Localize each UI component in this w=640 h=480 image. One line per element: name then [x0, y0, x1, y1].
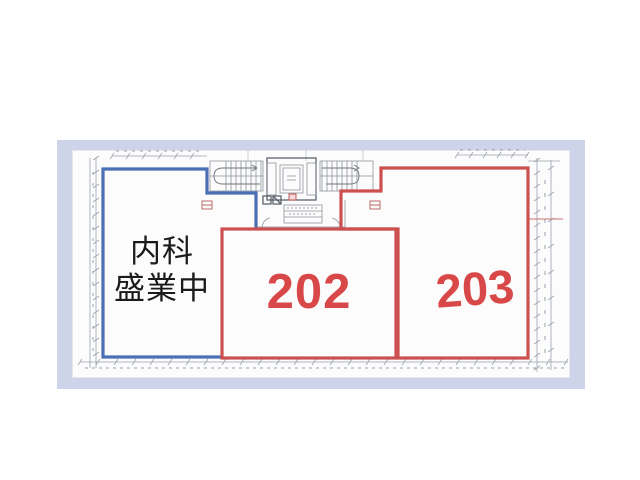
unit-203-label: 203	[416, 257, 534, 320]
red-marker	[289, 194, 296, 200]
floorplan-linework	[0, 0, 640, 480]
unit-left-label-line2: 盛業中	[100, 270, 224, 307]
left-stair	[210, 161, 263, 191]
unit-left-label-line1: 内科	[100, 233, 224, 270]
core-hall	[202, 194, 380, 227]
unit-202-label: 202	[222, 264, 396, 320]
unit-left-label: 内科 盛業中	[100, 233, 224, 307]
right-stair	[320, 161, 373, 191]
floorplan-screenshot: 内科 盛業中 202 203	[0, 0, 640, 480]
